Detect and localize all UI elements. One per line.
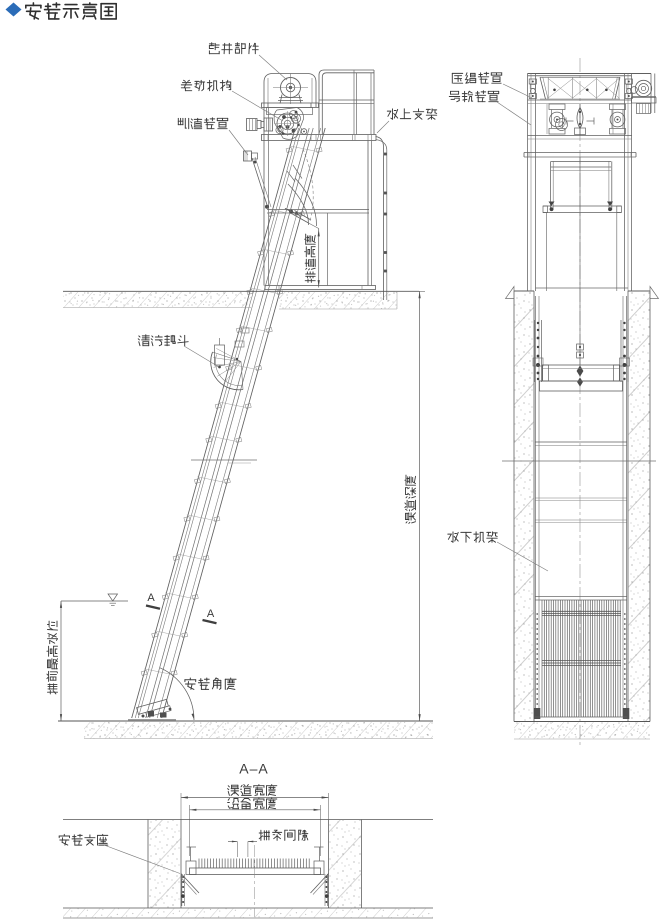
- svg-text:A: A: [207, 608, 215, 620]
- svg-text:A: A: [147, 592, 155, 604]
- svg-text:A–A: A–A: [239, 761, 268, 777]
